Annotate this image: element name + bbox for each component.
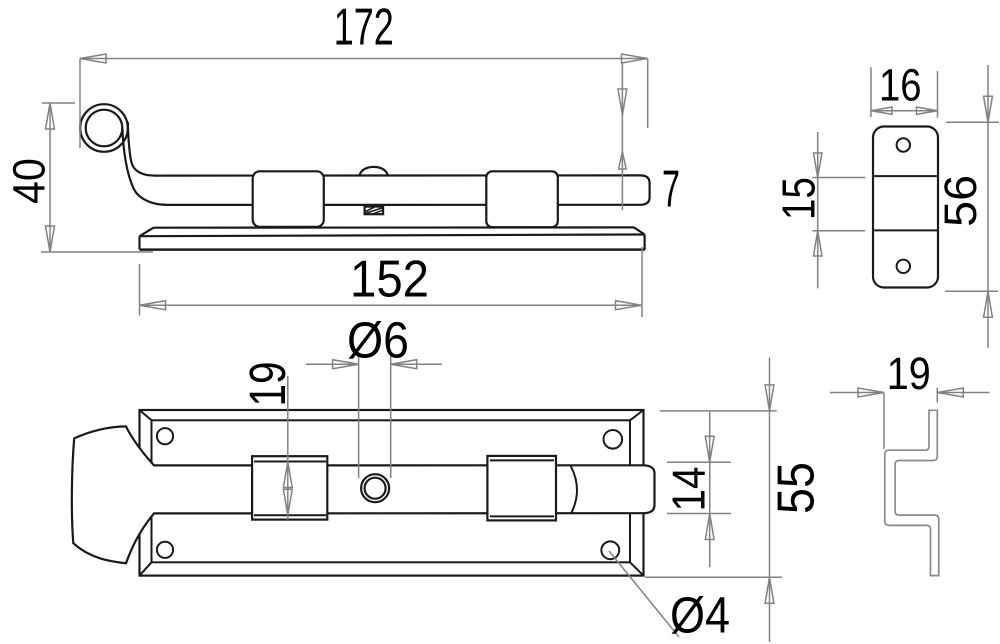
svg-text:Ø6: Ø6 [347, 311, 409, 368]
svg-text:19: 19 [239, 362, 296, 407]
svg-text:14: 14 [663, 467, 715, 512]
svg-text:7: 7 [662, 161, 680, 219]
svg-text:55: 55 [768, 462, 826, 514]
svg-text:172: 172 [334, 0, 394, 57]
svg-text:Ø4: Ø4 [670, 587, 730, 644]
svg-text:40: 40 [4, 158, 55, 204]
svg-text:15: 15 [773, 177, 825, 220]
svg-text:19: 19 [887, 348, 931, 399]
svg-text:152: 152 [350, 251, 429, 309]
svg-text:16: 16 [879, 60, 922, 111]
svg-text:56: 56 [935, 175, 986, 227]
